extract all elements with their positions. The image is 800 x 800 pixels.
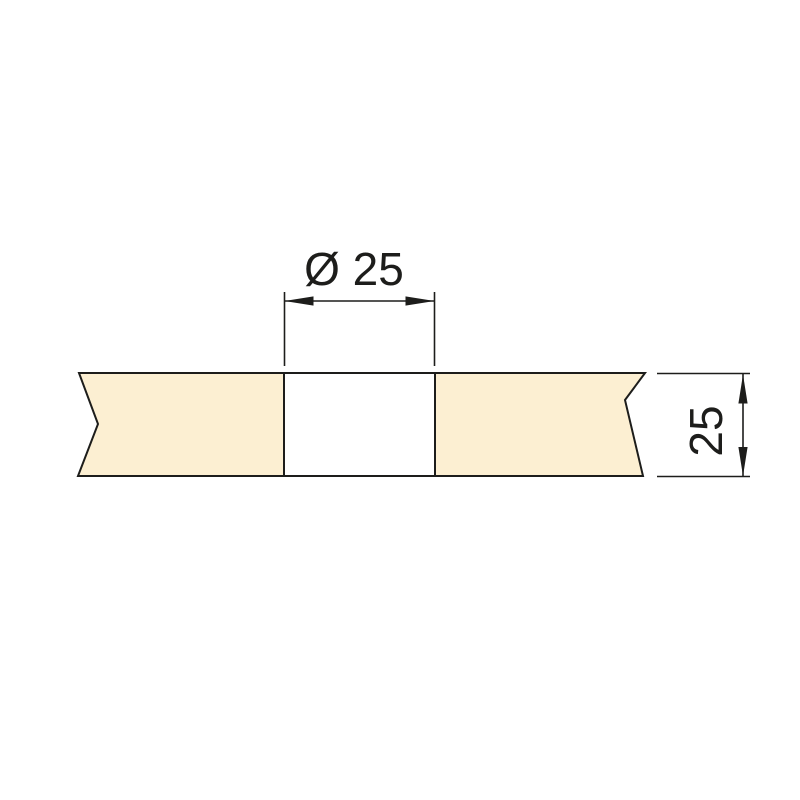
panel-section-right: [435, 373, 645, 476]
panel-hole-cross-section-drawing: Ø 25 25: [0, 0, 800, 800]
panel-section-left: [78, 373, 284, 476]
hole-diameter-label: Ø 25: [304, 243, 404, 295]
panel-thickness-label: 25: [680, 405, 732, 456]
technical-drawing-canvas: Ø 25 25: [0, 0, 800, 800]
